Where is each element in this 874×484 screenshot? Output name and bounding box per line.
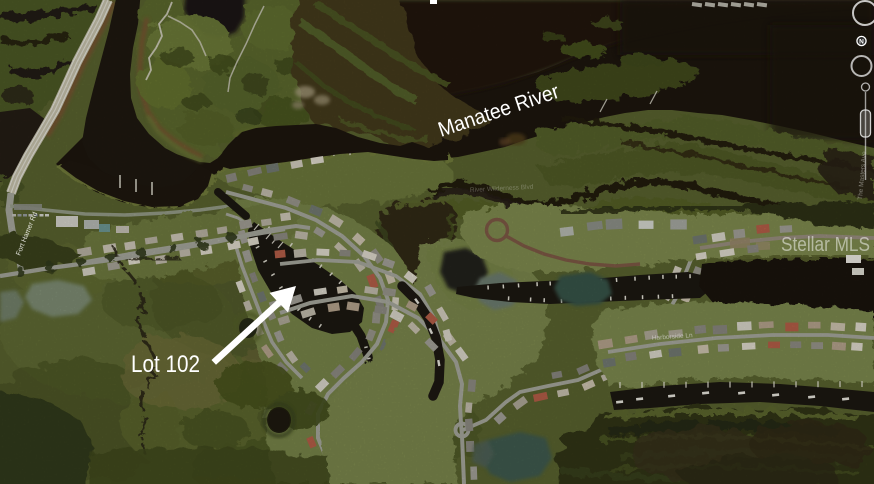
- svg-text:Lot 102: Lot 102: [131, 351, 200, 378]
- svg-text:Stellar MLS: Stellar MLS: [781, 233, 870, 256]
- svg-text:N: N: [859, 39, 864, 46]
